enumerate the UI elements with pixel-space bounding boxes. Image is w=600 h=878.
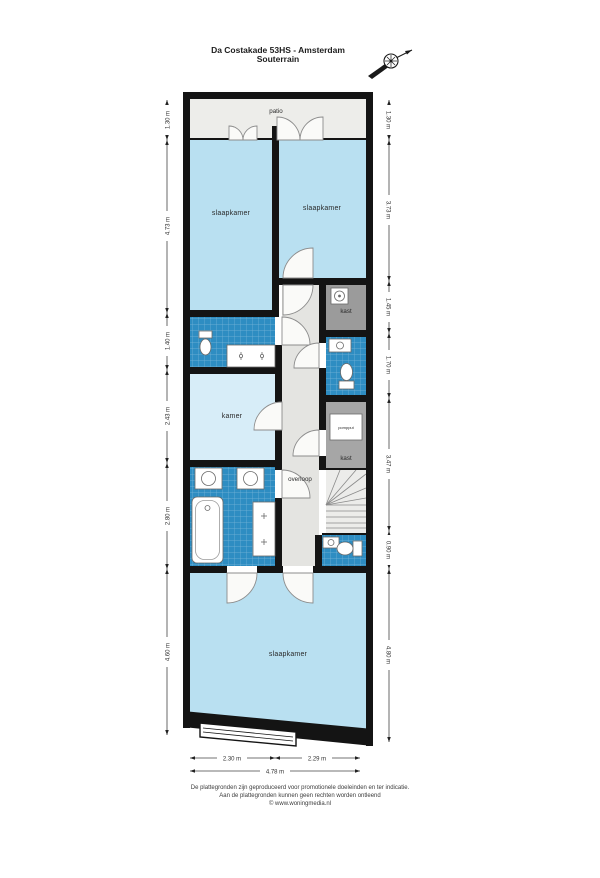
compass-icon [368, 50, 412, 79]
dim-right-6: 0.90 m [385, 541, 391, 559]
room-slaapkamer-top-left [190, 140, 272, 310]
disclaimer-line-1: De plattegronden zijn geproduceerd voor … [0, 784, 600, 792]
toilet-fixture-2 [337, 541, 362, 556]
label-patio: patio [269, 108, 283, 115]
plan-disclaimer: De plattegronden zijn geproduceerd voor … [0, 784, 600, 808]
sink-fixture-bath-1 [195, 468, 222, 489]
sink-fixture-toilet-1 [329, 339, 351, 352]
washer-unit [253, 502, 275, 556]
label-kast-boiler: kast [340, 308, 352, 315]
disclaimer-line-2: Aan de plattegronden kunnen geen rechten… [0, 792, 600, 800]
label-slaapkamer-top-left: slaapkamer [212, 210, 251, 217]
bathtub [192, 497, 223, 563]
boiler-icon [331, 288, 348, 304]
label-kast-pump: kast [340, 455, 352, 462]
dim-bottom-total: 4.78 m [266, 769, 284, 775]
dim-right-5: 3.47 m [385, 455, 391, 473]
toilet-fixture-washroom [199, 331, 212, 355]
dim-bottom-2: 2.29 m [308, 756, 326, 762]
sink-fixture-bath-2 [237, 468, 264, 489]
sink-fixture-toilet-2 [323, 537, 339, 548]
disclaimer-line-3: © www.woningmedia.nl [0, 800, 600, 808]
label-pompput: pompput [338, 425, 354, 430]
dim-left-2: 4.73 m [165, 217, 171, 235]
dim-right-2: 3.73 m [385, 201, 391, 219]
toilet-fixture-1 [339, 364, 354, 390]
dim-right-3: 1.45 m [385, 298, 391, 316]
dim-right-7: 4.80 m [385, 646, 391, 664]
label-overloop: overloop [288, 476, 312, 483]
counter-with-taps [227, 345, 275, 367]
dim-left-4: 2.43 m [165, 407, 171, 425]
dim-left-5: 2.80 m [165, 507, 171, 525]
dim-left-1: 1.30 m [165, 111, 171, 129]
label-kamer: kamer [222, 413, 243, 420]
floorplan-drawing: patio slaapkamer slaapkamer kast kamer p… [0, 0, 600, 878]
dim-left-3: 1.40 m [165, 332, 171, 350]
label-slaapkamer-top-right: slaapkamer [303, 205, 342, 212]
dim-right-1: 1.30 m [385, 111, 391, 129]
label-slaapkamer-bottom: slaapkamer [269, 651, 308, 658]
dim-right-4: 1.70 m [385, 356, 391, 374]
floorplan-page: Da Costakade 53HS - Amsterdam Souterrain [0, 0, 600, 878]
dim-bottom-1: 2.30 m [223, 756, 241, 762]
dim-left-6: 4.60 m [165, 643, 171, 661]
